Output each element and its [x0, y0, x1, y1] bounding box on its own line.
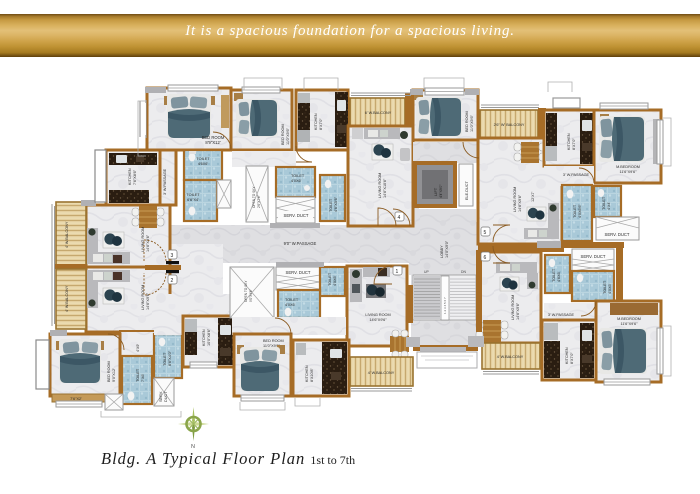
svg-text:4: 4: [398, 215, 401, 221]
svg-text:KITCHEN: KITCHEN: [305, 365, 309, 382]
svg-text:14'6"X9'6": 14'6"X9'6": [518, 194, 522, 212]
svg-text:3' W.PASSAGE: 3' W.PASSAGE: [563, 173, 590, 177]
svg-text:3' W.PASSAGE: 3' W.PASSAGE: [163, 168, 167, 195]
svg-text:M.BEDROOM: M.BEDROOM: [617, 317, 641, 321]
svg-text:SERV. DUCT: SERV. DUCT: [284, 213, 309, 218]
svg-text:LIVING ROOM: LIVING ROOM: [511, 295, 515, 320]
svg-text:4' W.BALCONY: 4' W.BALCONY: [65, 221, 69, 248]
svg-text:TOILET: TOILET: [136, 368, 140, 382]
svg-text:5: 5: [484, 230, 487, 236]
svg-text:BED ROOM: BED ROOM: [281, 124, 285, 145]
svg-text:LIVING ROOM: LIVING ROOM: [141, 227, 145, 252]
svg-text:LIVING ROOM: LIVING ROOM: [513, 187, 517, 212]
svg-text:M.BEDROOM: M.BEDROOM: [616, 165, 640, 169]
svg-text:TOILET: TOILET: [552, 268, 556, 282]
svg-text:4'0X6'6": 4'0X6'6": [578, 204, 582, 218]
svg-text:SERV.: SERV.: [159, 391, 163, 402]
svg-text:6'6"X4': 6'6"X4': [187, 198, 199, 202]
svg-text:1 2 3 4 5 6 7: 1 2 3 4 5 6 7: [443, 297, 447, 314]
svg-text:KITCHEN: KITCHEN: [565, 347, 569, 364]
svg-text:7'X6': 7'X6': [141, 374, 145, 382]
svg-text:2'6"X7'6": 2'6"X7'6": [257, 195, 261, 208]
svg-text:3: 3: [171, 253, 174, 259]
svg-text:4' W.BALCONY: 4' W.BALCONY: [497, 355, 524, 359]
svg-text:4'0X6': 4'0X6': [285, 303, 296, 307]
svg-text:TOILET: TOILET: [328, 272, 332, 286]
svg-text:14'0"X9'0": 14'0"X9'0": [445, 240, 449, 258]
svg-text:TOILET: TOILET: [291, 174, 305, 178]
svg-text:TOILET: TOILET: [186, 193, 200, 197]
svg-text:UP: UP: [424, 270, 429, 274]
svg-text:4'X4': 4'X4': [607, 202, 611, 210]
svg-text:KITCHEN: KITCHEN: [128, 168, 132, 185]
svg-text:6: 6: [484, 255, 487, 261]
svg-text:BED ROOM: BED ROOM: [107, 361, 111, 382]
svg-text:4' W.BALCONY: 4' W.BALCONY: [65, 285, 69, 312]
svg-text:2: 2: [171, 278, 174, 284]
svg-text:12'X7': 12'X7': [531, 191, 535, 202]
svg-text:6' W.BALCONY: 6' W.BALCONY: [365, 111, 392, 115]
svg-text:4'0X6': 4'0X6': [291, 179, 302, 183]
svg-text:SERV. DUCT: SERV. DUCT: [581, 254, 606, 259]
svg-text:LIVING ROOM: LIVING ROOM: [365, 313, 390, 317]
svg-text:11'6"X9'6": 11'6"X9'6": [621, 322, 639, 326]
svg-text:TOILET: TOILET: [602, 196, 606, 210]
svg-text:TOILET: TOILET: [573, 204, 577, 218]
svg-text:TOILET: TOILET: [329, 198, 333, 212]
svg-text:7'6"X2': 7'6"X2': [70, 397, 82, 401]
svg-text:4'6"X5'6": 4'6"X5'6": [334, 196, 338, 212]
svg-text:4'X9': 4'X9': [136, 344, 140, 352]
svg-text:TOILET: TOILET: [285, 298, 299, 302]
svg-text:11'0"X9'6": 11'0"X9'6": [286, 127, 290, 145]
svg-text:9'0"X4'6": 9'0"X4'6": [249, 289, 253, 302]
svg-text:LIVING ROOM: LIVING ROOM: [141, 285, 145, 310]
svg-text:4'4"X9'0": 4'4"X9'0": [439, 184, 443, 198]
svg-text:11'6"X9'6": 11'6"X9'6": [620, 170, 638, 174]
svg-text:OPEN TO SKY: OPEN TO SKY: [244, 280, 248, 302]
svg-text:ELE.DUCT: ELE.DUCT: [465, 181, 469, 200]
svg-text:14'6"X9'6": 14'6"X9'6": [516, 302, 520, 320]
svg-text:4' W.BALCONY: 4' W.BALCONY: [368, 371, 395, 375]
svg-text:DN: DN: [461, 270, 466, 274]
svg-text:9'0" W.PASSAGE: 9'0" W.PASSAGE: [284, 241, 317, 246]
svg-text:11'0"X9'6": 11'0"X9'6": [470, 114, 474, 132]
svg-text:LOBBY: LOBBY: [440, 245, 444, 258]
svg-text:TOILET: TOILET: [603, 280, 607, 294]
svg-text:DUCT: DUCT: [164, 391, 168, 402]
svg-text:BED ROOM: BED ROOM: [465, 111, 469, 132]
svg-text:14'6"X9'6": 14'6"X9'6": [146, 234, 150, 252]
svg-text:3' W.PASSAGE: 3' W.PASSAGE: [548, 313, 575, 317]
svg-text:LIVING ROOM: LIVING ROOM: [378, 173, 382, 198]
svg-text:BED ROOM: BED ROOM: [263, 339, 284, 343]
svg-text:4'0X6': 4'0X6': [608, 283, 612, 294]
svg-text:14'6"X9'6": 14'6"X9'6": [369, 318, 387, 322]
svg-text:8'X7'0": 8'X7'0": [570, 352, 574, 364]
svg-text:7'6"X8'6": 7'6"X8'6": [133, 169, 137, 185]
svg-text:KITCHEN: KITCHEN: [202, 329, 206, 346]
svg-text:2'6" W' BALCONY: 2'6" W' BALCONY: [494, 123, 525, 127]
svg-text:8'X7'0": 8'X7'0": [572, 138, 576, 150]
svg-text:8'X7'0": 8'X7'0": [319, 118, 323, 130]
svg-text:LIFT: LIFT: [433, 187, 438, 196]
svg-text:TOILET: TOILET: [196, 157, 210, 161]
svg-text:4'6X6': 4'6X6': [557, 271, 561, 282]
svg-text:KITCHEN: KITCHEN: [314, 113, 318, 130]
svg-text:10'0"X8'6": 10'0"X8'6": [207, 328, 211, 346]
svg-text:8'X10'8": 8'X10'8": [310, 368, 314, 382]
svg-text:8'9"X12': 8'9"X12': [205, 140, 220, 145]
svg-text:9'0"X12': 9'0"X12': [112, 368, 116, 382]
svg-text:4'0X6': 4'0X6': [333, 275, 337, 286]
svg-text:4'6X6': 4'6X6': [198, 162, 209, 166]
svg-text:1: 1: [396, 269, 399, 275]
svg-text:SERV. DUCT: SERV. DUCT: [286, 270, 311, 275]
svg-text:OPEN TO SKY: OPEN TO SKY: [252, 186, 256, 208]
svg-text:6'6"X4'0": 6'6"X4'0": [168, 350, 172, 366]
svg-text:TOILET: TOILET: [163, 352, 167, 366]
svg-text:KITCHEN: KITCHEN: [567, 133, 571, 150]
svg-text:14'6"X10'6": 14'6"X10'6": [383, 178, 387, 198]
svg-text:SERV. DUCT: SERV. DUCT: [605, 232, 630, 237]
